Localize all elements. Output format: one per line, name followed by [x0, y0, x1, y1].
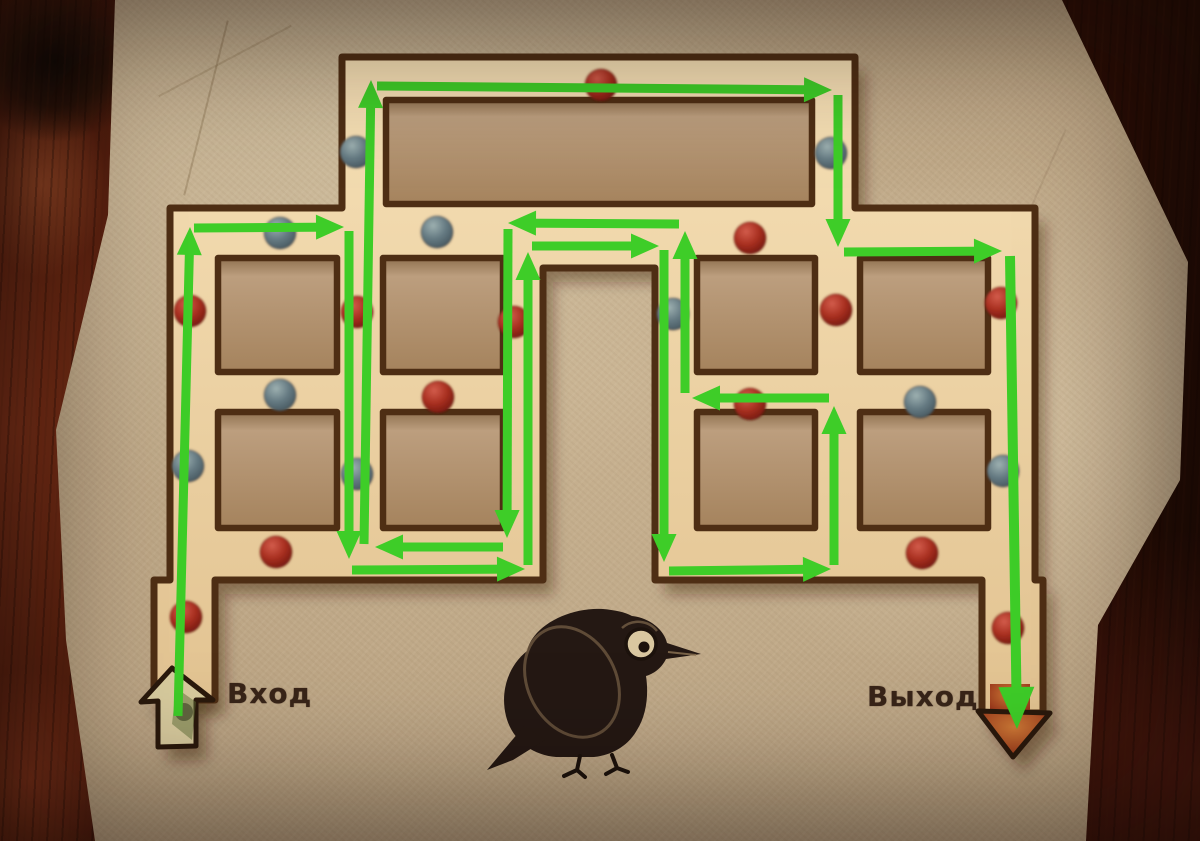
- red-bead-icon: [260, 536, 292, 568]
- crow-icon: [487, 609, 701, 777]
- blue-bead-icon: [264, 379, 296, 411]
- blue-bead-icon: [264, 217, 296, 249]
- red-bead-icon: [422, 381, 454, 413]
- red-bead-icon: [734, 388, 766, 420]
- red-bead-icon: [906, 537, 938, 569]
- maze-graphic: [0, 0, 1200, 841]
- exit-label: Выход: [867, 680, 979, 713]
- red-bead-icon: [734, 222, 766, 254]
- red-bead-icon: [820, 294, 852, 326]
- red-bead-icon: [170, 601, 202, 633]
- blue-bead-icon: [904, 386, 936, 418]
- entrance-label: Вход: [227, 677, 312, 710]
- blue-bead-icon: [421, 216, 453, 248]
- maze-puzzle-photo: Вход Выход: [0, 0, 1200, 841]
- maze-islands: [218, 100, 988, 528]
